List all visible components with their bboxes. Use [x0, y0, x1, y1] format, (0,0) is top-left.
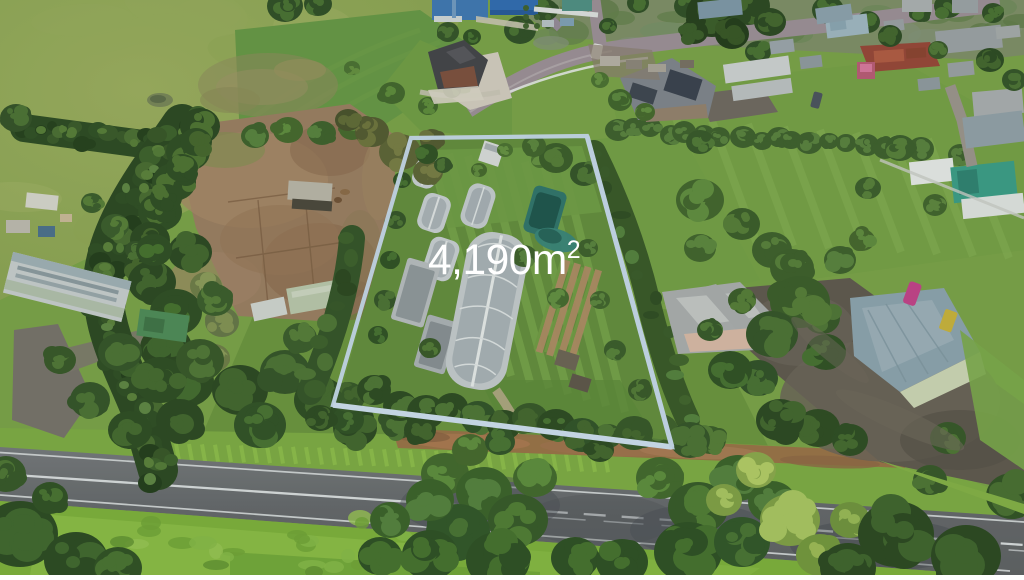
svg-text:4,190m2: 4,190m2	[428, 236, 580, 284]
